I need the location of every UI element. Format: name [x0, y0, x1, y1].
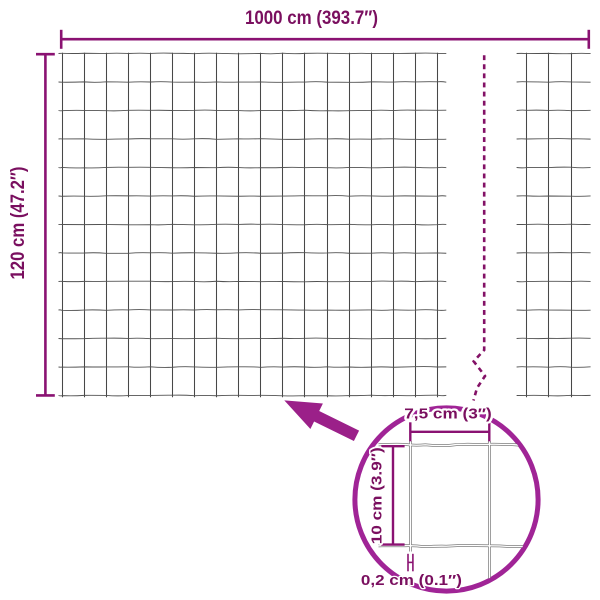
- svg-text:10 cm (3.9″): 10 cm (3.9″): [370, 447, 386, 544]
- svg-text:120 cm (47.2″): 120 cm (47.2″): [7, 167, 29, 280]
- svg-text:7,5 cm (3″): 7,5 cm (3″): [404, 407, 492, 423]
- svg-text:1000 cm (393.7″): 1000 cm (393.7″): [245, 7, 378, 29]
- svg-text:0,2 cm (0.1″): 0,2 cm (0.1″): [361, 573, 462, 589]
